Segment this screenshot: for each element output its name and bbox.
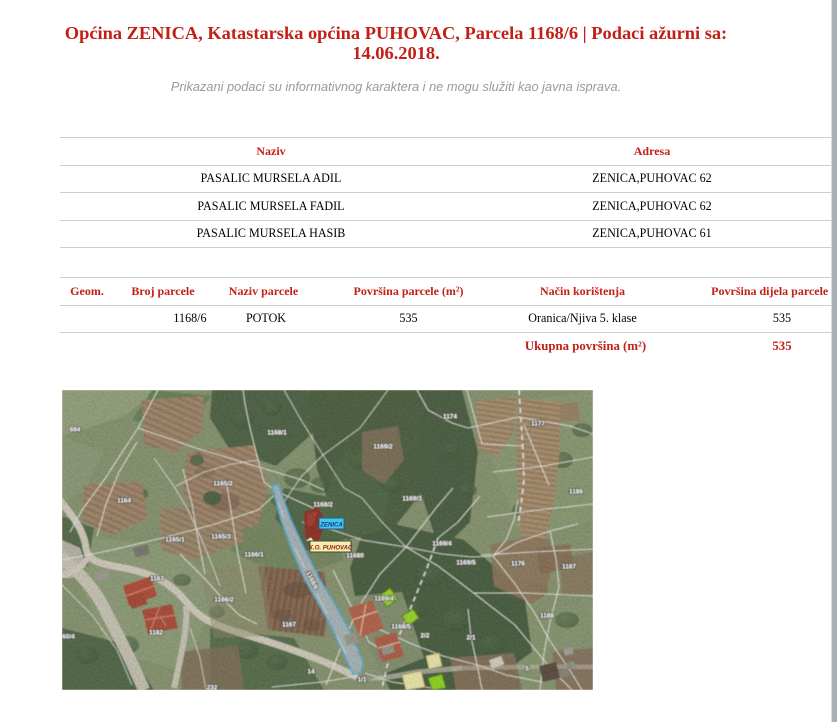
svg-text:ZENICA: ZENICA [319, 523, 342, 529]
svg-text:1169/5: 1169/5 [456, 560, 476, 567]
svg-text:1187: 1187 [562, 564, 576, 571]
svg-text:1168/5: 1168/5 [391, 624, 411, 631]
svg-text:1176: 1176 [511, 561, 525, 568]
svg-text:1169/4: 1169/4 [374, 596, 394, 603]
svg-text:1160/4: 1160/4 [62, 634, 75, 641]
svg-text:5: 5 [525, 666, 529, 673]
svg-text:1169/2: 1169/2 [373, 444, 393, 451]
svg-text:1168/2: 1168/2 [313, 502, 333, 509]
svg-text:232: 232 [207, 685, 218, 691]
svg-text:1165/1: 1165/1 [165, 537, 185, 544]
svg-text:1174: 1174 [443, 414, 457, 421]
svg-text:1167: 1167 [282, 622, 296, 629]
svg-text:1177: 1177 [531, 421, 545, 428]
svg-text:1186: 1186 [569, 489, 583, 496]
svg-text:1182: 1182 [149, 630, 163, 637]
svg-text:1168/1: 1168/1 [267, 430, 287, 437]
svg-text:2/2: 2/2 [420, 633, 429, 640]
svg-text:694: 694 [70, 427, 81, 434]
svg-text:1/1: 1/1 [357, 677, 366, 684]
svg-text:14: 14 [307, 669, 315, 676]
svg-text:K.O. PUHOVAC: K.O. PUHOVAC [309, 546, 353, 552]
svg-text:1169/3: 1169/3 [402, 496, 422, 503]
svg-text:2/1: 2/1 [466, 635, 475, 642]
svg-text:1188: 1188 [540, 613, 554, 620]
svg-text:1163: 1163 [150, 576, 164, 583]
svg-text:1166/1: 1166/1 [244, 552, 264, 559]
svg-text:1166/2: 1166/2 [214, 597, 234, 604]
svg-text:1165/2: 1165/2 [213, 481, 233, 488]
svg-text:1169/4: 1169/4 [432, 541, 452, 548]
svg-text:1165/3: 1165/3 [211, 534, 231, 541]
svg-text:1164: 1164 [117, 498, 131, 505]
svg-text:11680: 11680 [346, 553, 364, 560]
